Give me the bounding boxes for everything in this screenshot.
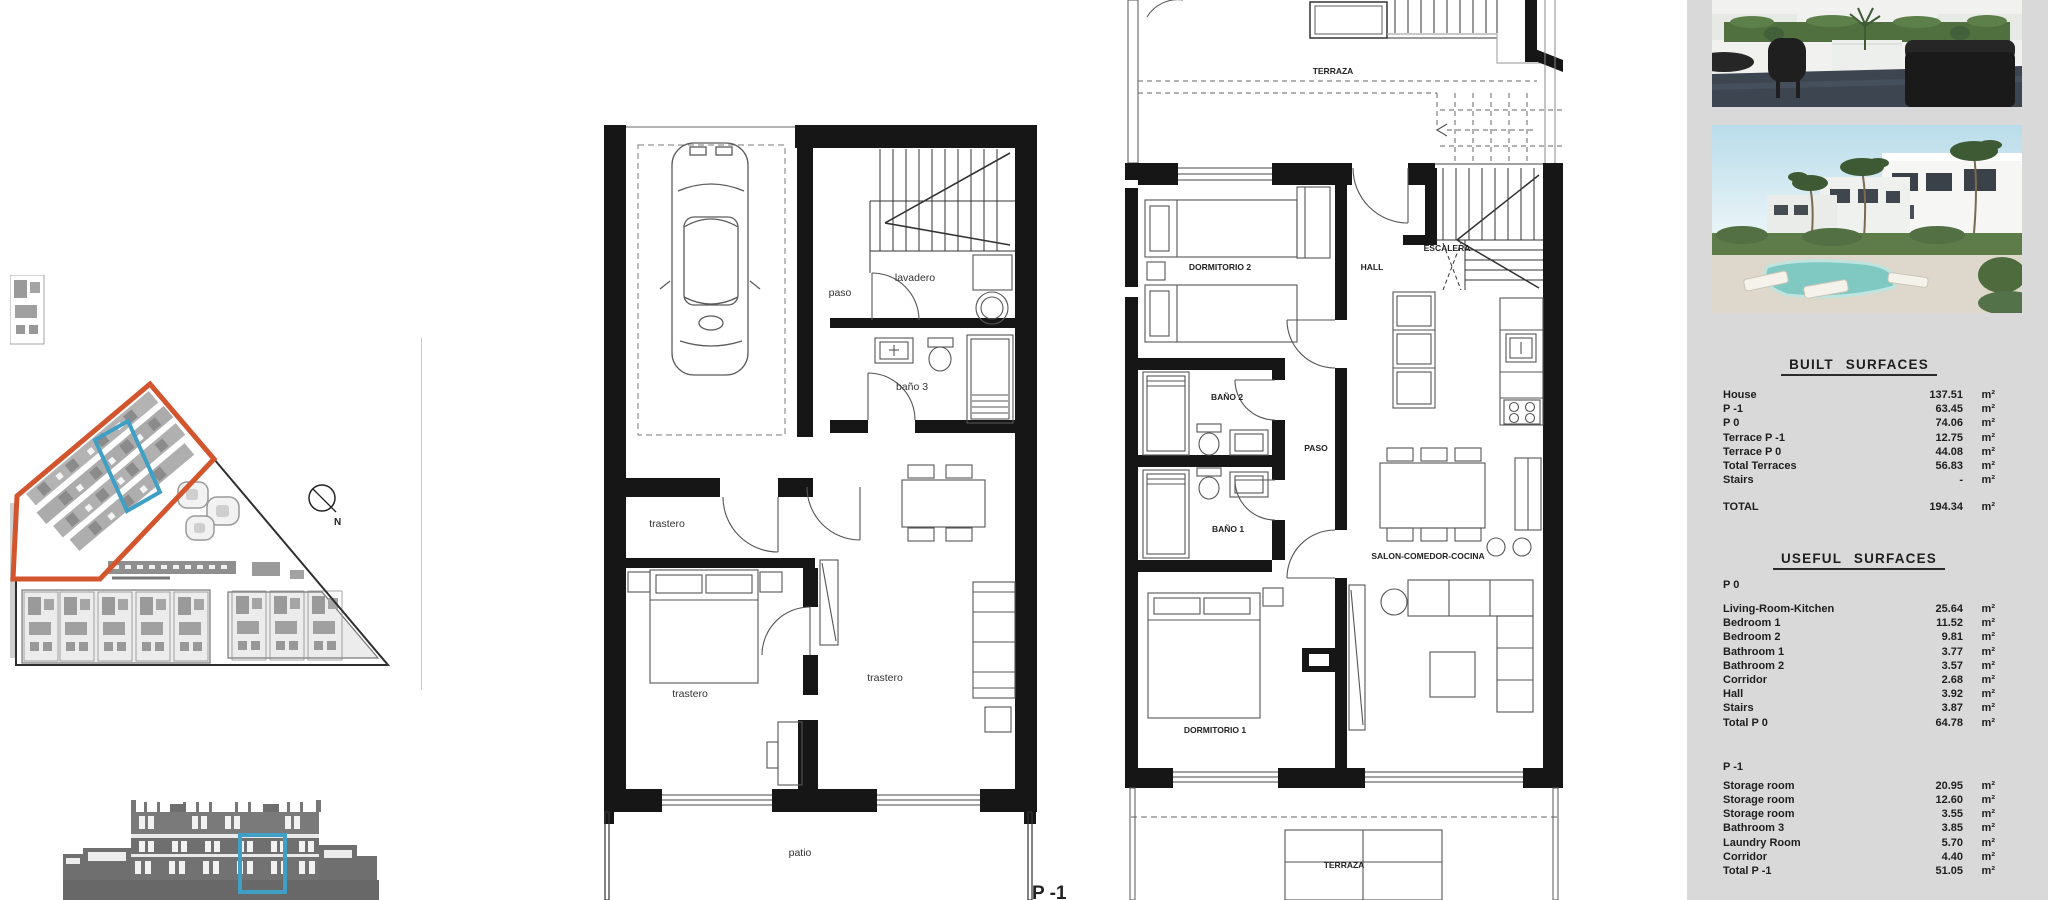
bedroom1-furniture (1148, 588, 1283, 718)
row-value: 3.55 (1905, 807, 1963, 821)
row-label: Terrace P 0 (1723, 445, 1905, 459)
table-row: Corridor2.68m² (1723, 673, 1995, 687)
direction-arrow-icon (1437, 124, 1447, 136)
table-row: P 074.06m² (1723, 416, 1995, 430)
wall-niche (1309, 654, 1329, 666)
row-value: 63.45 (1905, 402, 1963, 416)
bathroom3-fixtures (875, 335, 1013, 423)
row-unit: m² (1963, 659, 1995, 673)
vertical-divider (421, 338, 422, 690)
row-label: P -1 (1723, 402, 1905, 416)
terrace-photo (1712, 0, 2022, 107)
built-surfaces-rows: House137.51m² P -163.45m² P 074.06m² Ter… (1723, 388, 1995, 515)
table-row: Laundry Room5.70m² (1723, 836, 1995, 850)
row-label: P 0 (1723, 416, 1905, 430)
living-dining-furniture (1349, 448, 1533, 730)
row-label: Total Terraces (1723, 459, 1905, 473)
wall-notch-2 (1125, 287, 1138, 297)
row-label: House (1723, 388, 1905, 402)
row-unit: m² (1963, 459, 1995, 473)
table-row: House137.51m² (1723, 388, 1995, 402)
row-value: 12.60 (1905, 793, 1963, 807)
lower-terrace (1130, 788, 1558, 900)
row-unit: m² (1963, 793, 1995, 807)
label-escalera: ESCALERA (1424, 243, 1471, 253)
row-value: 3.57 (1905, 659, 1963, 673)
label-dormitorio2: DORMITORIO 2 (1189, 262, 1251, 272)
table-row: Bedroom 111.52m² (1723, 616, 1995, 630)
road-strip (108, 561, 304, 579)
floor-tag-p-1: P -1 (1032, 883, 1067, 900)
row-unit: m² (1963, 416, 1995, 430)
row-label: Total P -1 (1723, 864, 1905, 878)
row-unit: m² (1963, 630, 1995, 644)
row-unit: m² (1963, 616, 1995, 630)
label-terraza-bottom: TERRAZA (1324, 860, 1365, 870)
row-unit: m² (1963, 431, 1995, 445)
row-label: Storage room (1723, 779, 1905, 793)
built-surfaces-title-wrap: BUILT SURFACES (1723, 356, 1995, 376)
row-value: 64.78 (1905, 716, 1963, 730)
row-label: Stairs (1723, 473, 1905, 487)
row-value: 3.87 (1905, 701, 1963, 715)
exterior-pool-photo (1712, 125, 2022, 313)
p0-heading: P 0 (1723, 578, 1995, 592)
row-value: 2.68 (1905, 673, 1963, 687)
row-value: 12.75 (1905, 431, 1963, 445)
row-label: Bedroom 2 (1723, 630, 1905, 644)
row-value: 4.40 (1905, 850, 1963, 864)
row-label: Storage room (1723, 807, 1905, 821)
row-unit: m² (1963, 850, 1995, 864)
row-unit: m² (1963, 807, 1995, 821)
row-label: Bedroom 1 (1723, 616, 1905, 630)
table-row: Stairs3.87m² (1723, 701, 1995, 715)
label-dormitorio1: DORMITORIO 1 (1184, 725, 1246, 735)
parking-bay-dashed (638, 145, 785, 435)
table-row: Storage room12.60m² (1723, 793, 1995, 807)
label-trastero-top: trastero (649, 518, 685, 530)
door-arcs-p-1 (723, 273, 919, 655)
row-label: Laundry Room (1723, 836, 1905, 850)
row-unit: m² (1963, 645, 1995, 659)
row-unit: m² (1963, 673, 1995, 687)
row-label: Bathroom 1 (1723, 645, 1905, 659)
terrace-photo-art (1712, 0, 2022, 107)
row-unit: m² (1963, 602, 1995, 616)
row-label: Stairs (1723, 701, 1905, 715)
row-unit: m² (1963, 821, 1995, 835)
row-value: 25.64 (1905, 602, 1963, 616)
row-label: Corridor (1723, 850, 1905, 864)
stairs-p0 (1437, 168, 1543, 290)
row-unit: m² (1963, 388, 1995, 402)
north-label: N (334, 517, 341, 528)
row-value: 3.92 (1905, 687, 1963, 701)
row-value: 5.70 (1905, 836, 1963, 850)
useful-surfaces-table: USEFUL SURFACES P 0 Living-Room-Kitchen2… (1723, 550, 1995, 878)
table-row: Bathroom 13.77m² (1723, 645, 1995, 659)
row-label: Total P 0 (1723, 716, 1905, 730)
row-label: Living-Room-Kitchen (1723, 602, 1905, 616)
row-value: - (1905, 473, 1963, 487)
row-value: 9.81 (1905, 630, 1963, 644)
row-value: 74.06 (1905, 416, 1963, 430)
label-paso: paso (829, 287, 852, 299)
bathroom1-fixtures (1143, 468, 1268, 558)
row-unit: m² (1963, 402, 1995, 416)
row-value: 194.34 (1905, 500, 1963, 514)
table-row: Corridor4.40m² (1723, 850, 1995, 864)
table-row: Storage room20.95m² (1723, 779, 1995, 793)
row-value: 56.83 (1905, 459, 1963, 473)
row-value: 3.77 (1905, 645, 1963, 659)
table-row: Bathroom 33.85m² (1723, 821, 1995, 835)
p-1-heading: P -1 (1723, 760, 1995, 774)
table-row: Living-Room-Kitchen25.64m² (1723, 602, 1995, 616)
floor-plan-p-1: paso lavadero baño 3 trastero trastero t… (600, 95, 1040, 900)
row-value: 51.05 (1905, 864, 1963, 878)
row-label: Bathroom 3 (1723, 821, 1905, 835)
table-row: Total Terraces56.83m² (1723, 459, 1995, 473)
row-unit: m² (1963, 687, 1995, 701)
table-row: P -163.45m² (1723, 402, 1995, 416)
table-row: Bathroom 23.57m² (1723, 659, 1995, 673)
label-terraza-top: TERRAZA (1313, 66, 1354, 76)
row-label: Corridor (1723, 673, 1905, 687)
table-total-row: TOTAL194.34m² (1723, 500, 1995, 514)
row-value: 137.51 (1905, 388, 1963, 402)
table-row: Terrace P 044.08m² (1723, 445, 1995, 459)
info-sidebar: BUILT SURFACES House137.51m² P -163.45m²… (1687, 0, 2048, 900)
label-bano3: baño 3 (896, 381, 928, 393)
label-patio: patio (789, 847, 812, 859)
row-label: Storage room (1723, 793, 1905, 807)
north-compass-icon: N (309, 485, 341, 528)
site-plan: N (10, 275, 410, 700)
row-value: 44.08 (1905, 445, 1963, 459)
table-row: Stairs-m² (1723, 473, 1995, 487)
table-row: Hall3.92m² (1723, 687, 1995, 701)
label-trastero-main: trastero (867, 672, 903, 684)
row-value: 3.85 (1905, 821, 1963, 835)
storage-mainroom-furniture (902, 465, 1015, 732)
useful-surfaces-title: USEFUL SURFACES (1773, 551, 1945, 570)
table-row: Storage room3.55m² (1723, 807, 1995, 821)
plan-sheet: N (0, 0, 2048, 900)
label-bano2: BAÑO 2 (1211, 392, 1243, 402)
car-icon (660, 143, 760, 375)
row-label: Hall (1723, 687, 1905, 701)
elevation-drawing (55, 788, 385, 900)
row-label: Terrace P -1 (1723, 431, 1905, 445)
label-bano1: BAÑO 1 (1212, 524, 1244, 534)
upper-terrace (1128, 0, 1563, 163)
exterior-photo-art (1712, 125, 2022, 313)
bathroom2-fixtures (1143, 372, 1268, 455)
row-label: Bathroom 2 (1723, 659, 1905, 673)
useful-p0-rows: Living-Room-Kitchen25.64m² Bedroom 111.5… (1723, 602, 1995, 730)
table-row: Bedroom 29.81m² (1723, 630, 1995, 644)
built-surfaces-table: BUILT SURFACES House137.51m² P -163.45m²… (1723, 356, 1995, 515)
label-trastero-mid: trastero (672, 688, 708, 700)
wall-notch-1 (1125, 180, 1138, 188)
floor-plan-p0: TERRAZA DORMITORIO 2 HALL ESCALERA BAÑO … (1125, 0, 1565, 900)
label-lavadero: lavadero (895, 272, 935, 284)
row-unit: m² (1963, 864, 1995, 878)
room-labels-p0: TERRAZA DORMITORIO 2 HALL ESCALERA BAÑO … (1184, 66, 1485, 870)
row-unit: m² (1963, 500, 1995, 514)
elevation-building (63, 800, 379, 900)
row-unit: m² (1963, 716, 1995, 730)
built-surfaces-title: BUILT SURFACES (1781, 357, 1937, 376)
row-unit: m² (1963, 836, 1995, 850)
table-total-row: Total P -151.05m² (1723, 864, 1995, 878)
row-label: TOTAL (1723, 500, 1905, 514)
kitchen-fixtures (1393, 292, 1543, 530)
stairs-p-1 (870, 149, 1015, 273)
table-row: Terrace P -112.75m² (1723, 431, 1995, 445)
row-unit: m² (1963, 445, 1995, 459)
label-salon: SALON-COMEDOR-COCINA (1371, 551, 1484, 561)
row-unit: m² (1963, 701, 1995, 715)
row-unit: m² (1963, 473, 1995, 487)
label-paso: PASO (1304, 443, 1328, 453)
label-hall: HALL (1361, 262, 1384, 272)
table-total-row: Total P 064.78m² (1723, 716, 1995, 730)
door-arcs-p0 (1235, 168, 1408, 578)
row-value: 11.52 (1905, 616, 1963, 630)
useful-p1-rows: Storage room20.95m² Storage room12.60m² … (1723, 779, 1995, 878)
row-value: 20.95 (1905, 779, 1963, 793)
laundry-fixtures (973, 255, 1012, 324)
row-unit: m² (1963, 779, 1995, 793)
patio-walls (605, 812, 1032, 900)
useful-surfaces-title-wrap: USEFUL SURFACES (1723, 550, 1995, 570)
